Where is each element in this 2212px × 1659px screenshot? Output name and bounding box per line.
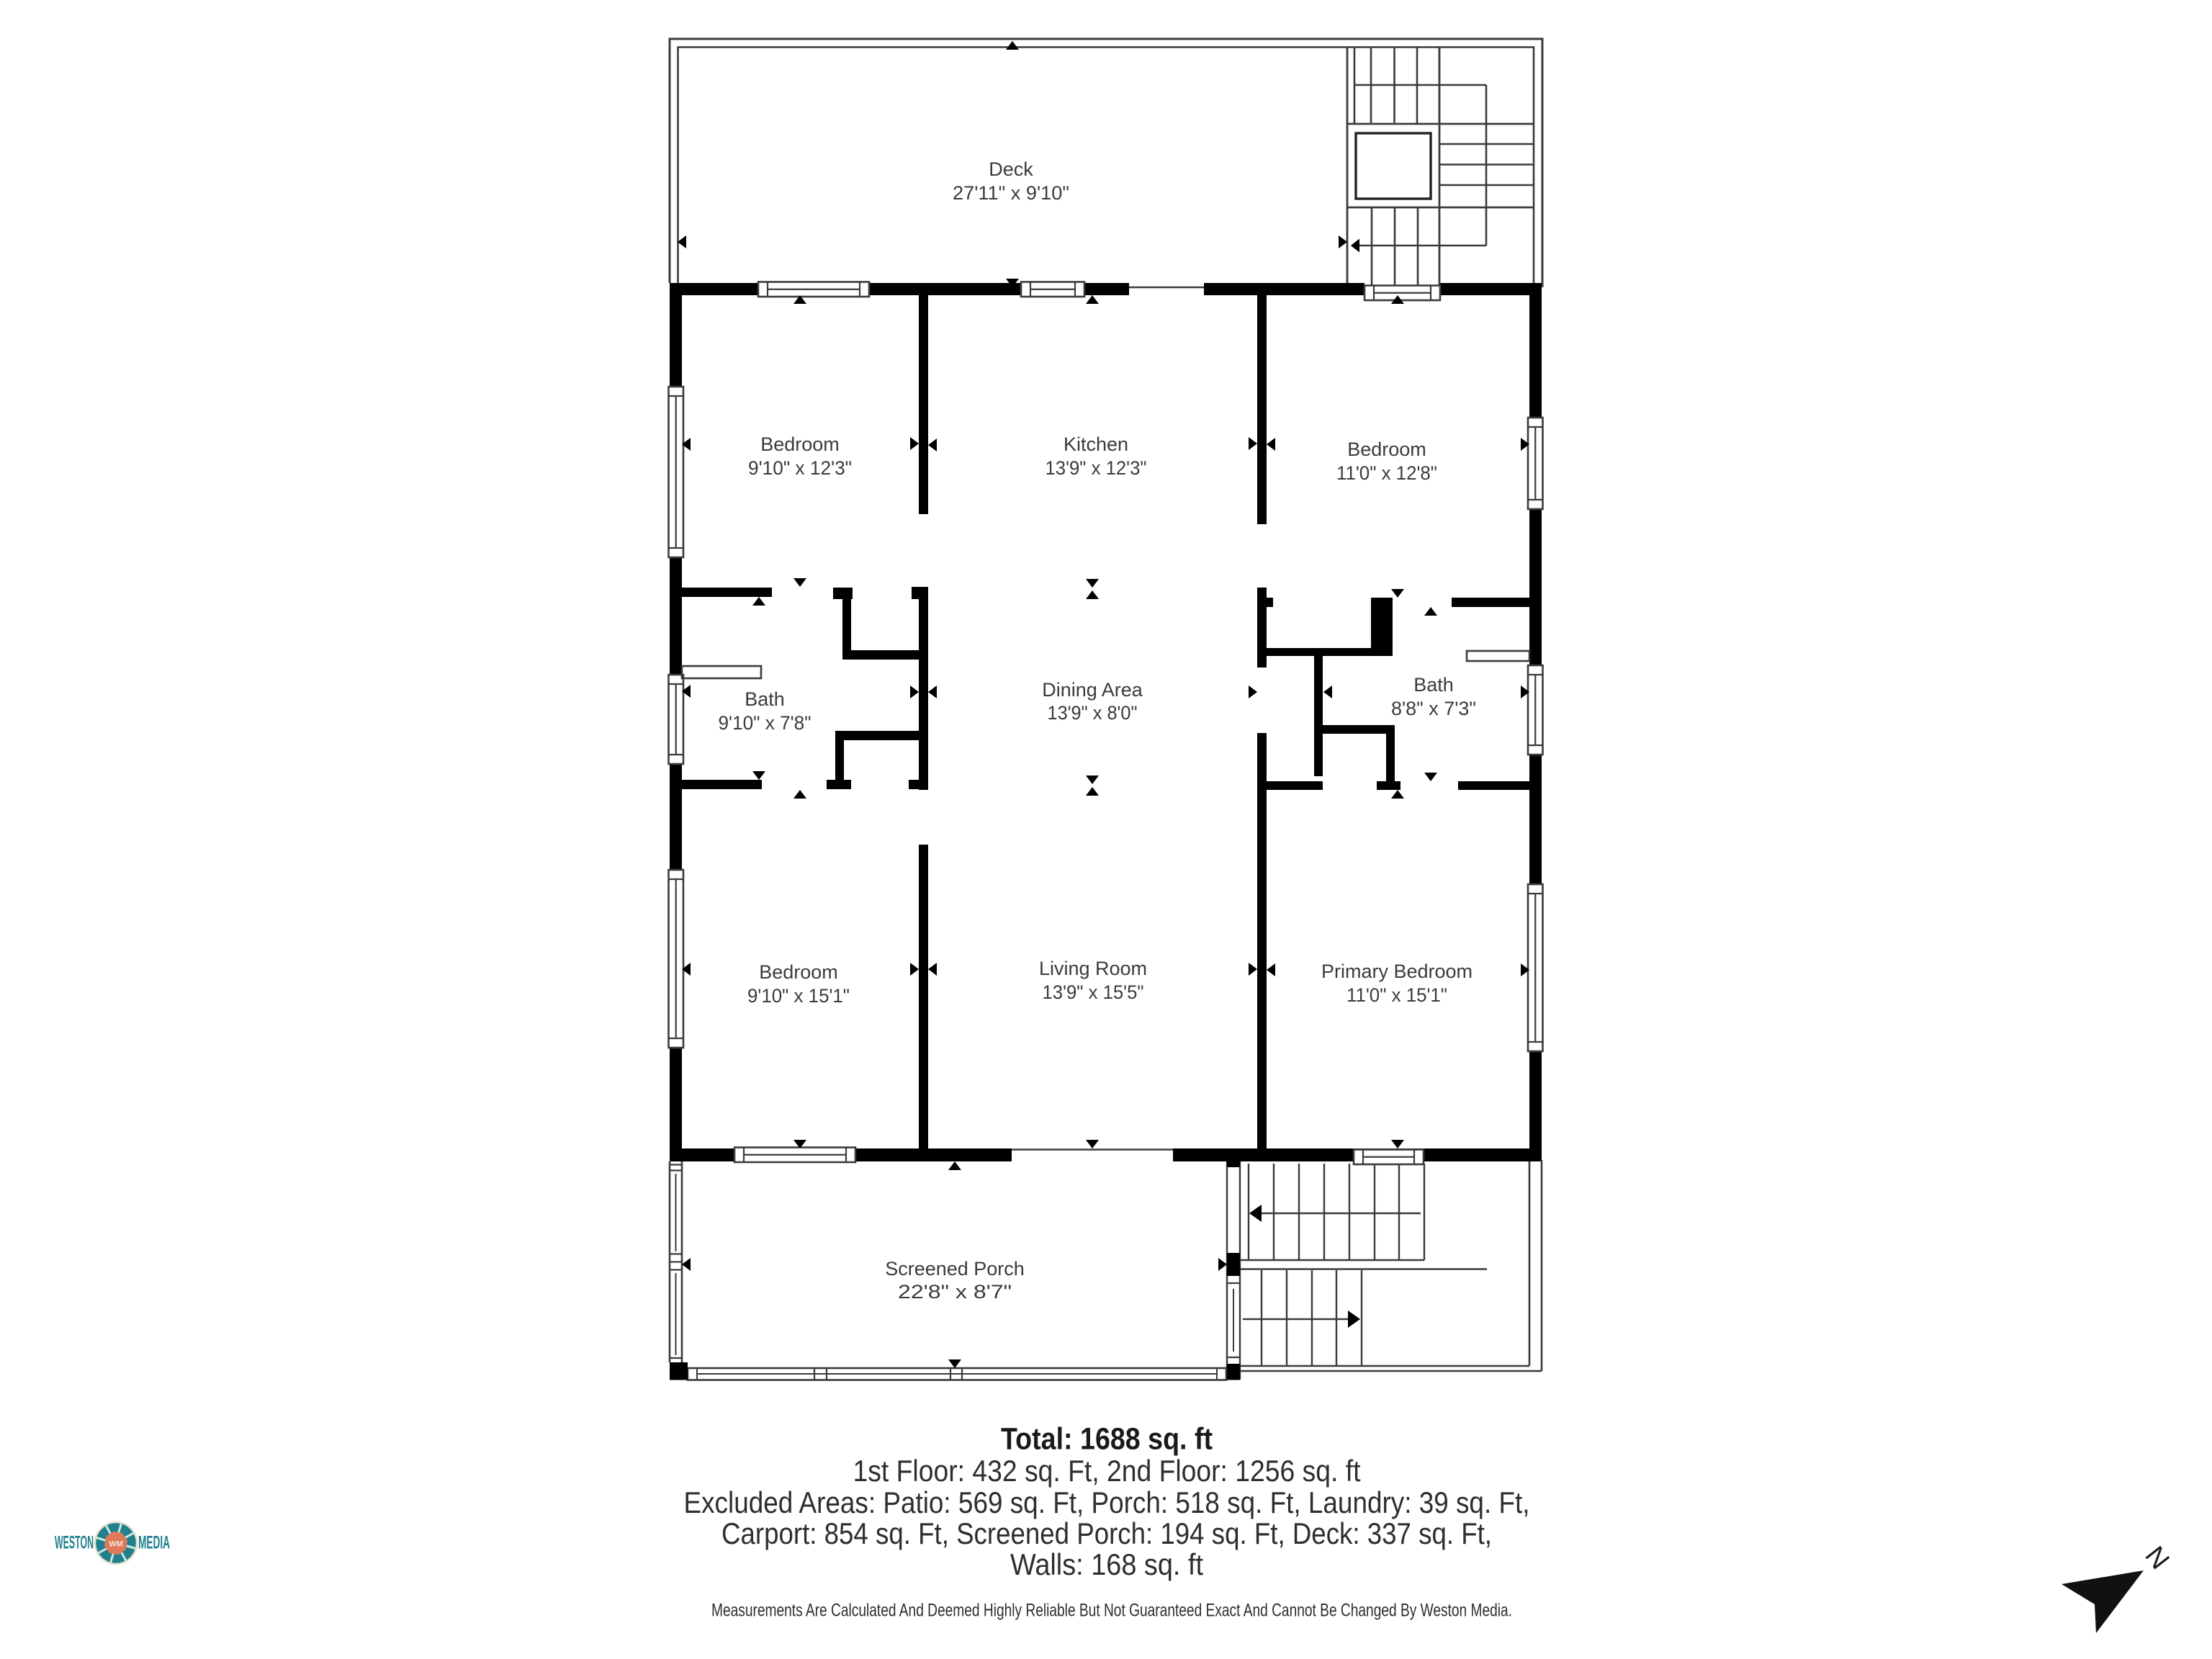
svg-text:Bedroom: Bedroom <box>1347 439 1426 460</box>
svg-text:8'8" x 7'3": 8'8" x 7'3" <box>1391 698 1476 719</box>
svg-text:WESTON: WESTON <box>55 1533 94 1553</box>
svg-text:Walls: 168 sq. ft: Walls: 168 sq. ft <box>1010 1547 1203 1581</box>
svg-text:Screened Porch: Screened Porch <box>885 1258 1025 1280</box>
svg-text:Bedroom: Bedroom <box>759 961 838 983</box>
svg-text:9'10" x 12'3": 9'10" x 12'3" <box>748 457 852 479</box>
svg-text:Primary Bedroom: Primary Bedroom <box>1321 961 1473 982</box>
svg-text:Measurements Are Calculated An: Measurements Are Calculated And Deemed H… <box>711 1601 1512 1621</box>
svg-text:Deck: Deck <box>989 158 1033 180</box>
svg-text:13'9" x 8'0": 13'9" x 8'0" <box>1048 702 1138 724</box>
svg-text:Living Room: Living Room <box>1039 958 1147 979</box>
svg-text:11'0" x 12'8": 11'0" x 12'8" <box>1336 462 1437 484</box>
svg-text:MEDIA: MEDIA <box>138 1533 170 1553</box>
svg-text:Excluded Areas: Patio: 569 sq.: Excluded Areas: Patio: 569 sq. Ft, Porch… <box>684 1485 1530 1519</box>
svg-text:13'9" x 12'3": 13'9" x 12'3" <box>1046 457 1147 479</box>
svg-text:Bedroom: Bedroom <box>760 433 840 455</box>
svg-text:9'10" x 7'8": 9'10" x 7'8" <box>719 712 811 734</box>
svg-text:13'9" x 15'5": 13'9" x 15'5" <box>1043 981 1144 1003</box>
svg-text:9'10" x 15'1": 9'10" x 15'1" <box>747 985 850 1007</box>
svg-text:22'8" x 8'7": 22'8" x 8'7" <box>898 1281 1012 1303</box>
svg-text:Kitchen: Kitchen <box>1064 433 1128 455</box>
svg-text:1st Floor: 432 sq. Ft, 2nd Flo: 1st Floor: 432 sq. Ft, 2nd Floor: 1256 s… <box>853 1454 1361 1488</box>
svg-text:Bath: Bath <box>1413 674 1454 696</box>
svg-text:Bath: Bath <box>745 688 785 710</box>
svg-text:Total: 1688 sq. ft: Total: 1688 sq. ft <box>1001 1421 1213 1456</box>
svg-text:11'0" x 15'1": 11'0" x 15'1" <box>1346 984 1447 1006</box>
svg-text:Dining Area: Dining Area <box>1042 679 1143 701</box>
svg-text:Carport: 854 sq. Ft, Screened: Carport: 854 sq. Ft, Screened Porch: 194… <box>721 1516 1492 1550</box>
svg-text:WM: WM <box>109 1539 123 1548</box>
svg-text:27'11" x 9'10": 27'11" x 9'10" <box>953 182 1069 204</box>
